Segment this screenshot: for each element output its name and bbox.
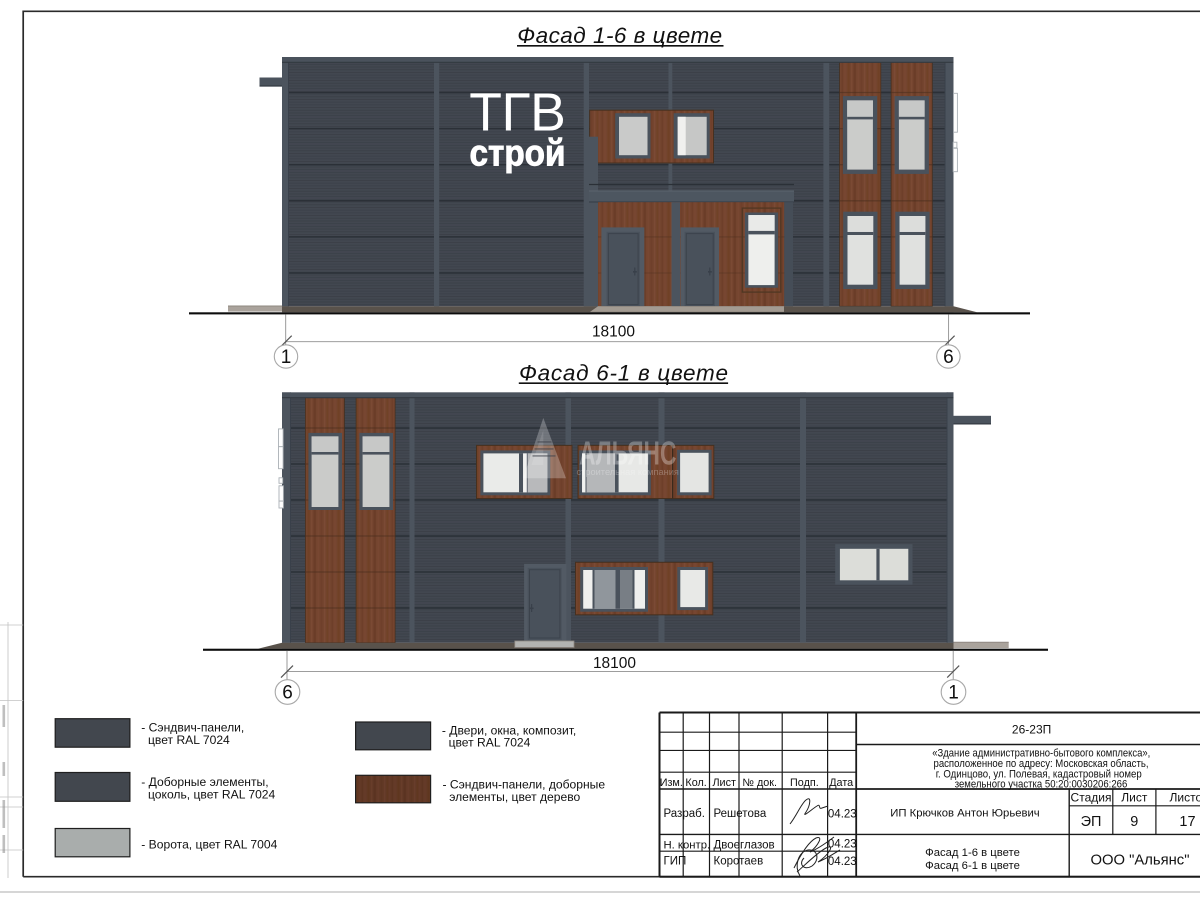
svg-text:17: 17 xyxy=(1179,814,1195,830)
svg-text:Изм.: Изм. xyxy=(660,777,683,789)
svg-text:18100: 18100 xyxy=(593,655,636,672)
svg-text:Дата: Дата xyxy=(829,777,853,789)
svg-text:цоколь, цвет RAL 7024: цоколь, цвет RAL 7024 xyxy=(148,788,276,802)
svg-text:№ док.: № док. xyxy=(742,777,777,789)
svg-text:Кол.: Кол. xyxy=(685,777,706,789)
svg-text:26-23П: 26-23П xyxy=(1012,723,1051,737)
svg-text:6: 6 xyxy=(943,347,954,368)
svg-text:- Ворота, цвет RAL 7004: - Ворота, цвет RAL 7004 xyxy=(141,837,277,851)
svg-text:Фасад 6-1 в цвете: Фасад 6-1 в цвете xyxy=(925,860,1020,872)
svg-text:цвет RAL 7024: цвет RAL 7024 xyxy=(148,733,230,747)
svg-text:ГИП: ГИП xyxy=(664,856,687,868)
svg-text:цвет RAL 7024: цвет RAL 7024 xyxy=(449,736,531,750)
svg-text:земельного участка 50:20:00302: земельного участка 50:20:0030206:266 xyxy=(955,779,1128,791)
svg-text:Лист: Лист xyxy=(712,777,736,789)
svg-text:Подп.: Подп. xyxy=(790,777,819,789)
svg-text:Решетова: Решетова xyxy=(714,808,767,820)
svg-text:ООО "Альянс": ООО "Альянс" xyxy=(1091,853,1190,869)
svg-text:Разраб.: Разраб. xyxy=(664,808,705,820)
svg-text:Фасад 6-1 в цвете: Фасад 6-1 в цвете xyxy=(519,361,728,386)
svg-text:9: 9 xyxy=(1130,814,1138,830)
svg-text:АЛЬЯНС: АЛЬЯНС xyxy=(579,434,676,471)
svg-text:04.23: 04.23 xyxy=(828,856,857,868)
svg-text:1: 1 xyxy=(281,347,292,368)
svg-text:Коротаев: Коротаев xyxy=(714,856,764,868)
svg-text:строительная компания: строительная компания xyxy=(577,467,679,478)
svg-text:04.23: 04.23 xyxy=(828,809,857,821)
svg-text:Стадия: Стадия xyxy=(1071,791,1112,805)
svg-text:Лист: Лист xyxy=(1121,791,1148,805)
svg-text:Двоеглазов: Двоеглазов xyxy=(714,840,775,852)
svg-text:Фасад 1-6 в цвете: Фасад 1-6 в цвете xyxy=(517,23,722,48)
svg-text:1: 1 xyxy=(948,683,959,704)
svg-text:элементы, цвет дерево: элементы, цвет дерево xyxy=(449,790,580,804)
svg-text:Фасад 1-6 в цвете: Фасад 1-6 в цвете xyxy=(925,847,1020,859)
svg-text:строй: строй xyxy=(470,133,566,174)
svg-text:Листов: Листов xyxy=(1170,791,1200,805)
svg-text:18100: 18100 xyxy=(592,324,635,341)
svg-text:Н. контр.: Н. контр. xyxy=(664,840,711,852)
svg-text:ИП Крючков Антон Юрьевич: ИП Крючков Антон Юрьевич xyxy=(890,808,1040,820)
svg-text:04.23: 04.23 xyxy=(828,839,857,851)
svg-text:ЭП: ЭП xyxy=(1081,814,1102,830)
svg-text:6: 6 xyxy=(282,683,293,704)
